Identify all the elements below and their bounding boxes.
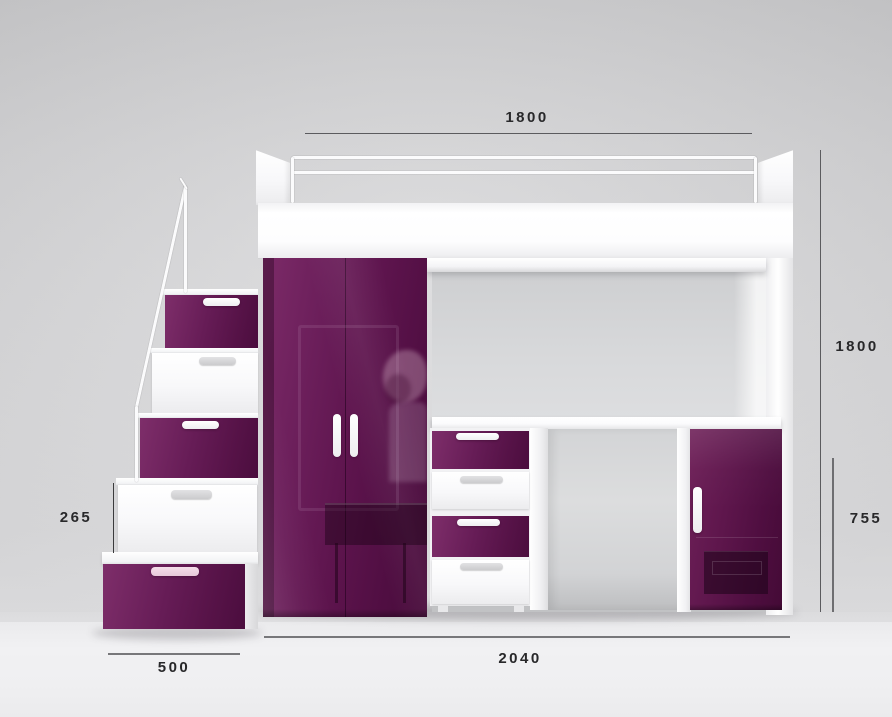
dim-label-desk-clearance: 755	[840, 510, 892, 527]
cabinet-door-handle	[693, 487, 702, 533]
wardrobe-reflection-door-frame	[298, 325, 399, 511]
step-5-top	[102, 552, 258, 564]
step-4-handle	[171, 490, 212, 499]
step-5-handle	[151, 567, 199, 576]
wardrobe-reflection-woman-face	[385, 374, 411, 404]
alcove-right-inner-wall	[734, 262, 766, 420]
furniture-dimension-diagram: 1800 1800 755 265 500 2040	[0, 0, 892, 717]
drawer-unit-side-panel	[530, 428, 548, 610]
dim-line-desk-clearance	[832, 458, 834, 612]
dim-label-steps-depth: 500	[147, 659, 201, 676]
drawer-2-handle	[460, 476, 503, 483]
step-3-handle	[182, 421, 219, 429]
alcove-top-shelf	[427, 258, 766, 272]
wardrobe-reflection-table-leg-right	[403, 543, 406, 603]
handrail-top-post	[184, 186, 187, 293]
wardrobe-reflection-table-top	[325, 503, 427, 545]
dim-line-total-height	[820, 150, 821, 612]
dim-line-step-height	[113, 483, 114, 553]
cabinet-door-reflection-line	[696, 537, 778, 538]
step-2-handle	[199, 357, 236, 365]
bed-fascia-panel	[258, 203, 793, 259]
dim-label-total-height: 1800	[822, 338, 892, 355]
wardrobe-bottom-shade	[263, 609, 427, 617]
drawer-unit-foot-left	[438, 606, 448, 612]
desk-open-space	[548, 429, 677, 610]
drawer-4-handle	[460, 563, 503, 570]
dim-label-bed-width: 1800	[483, 109, 571, 126]
step-1-handle	[203, 298, 240, 306]
bed-guardrail-top-tube	[292, 156, 756, 159]
cabinet-door	[690, 429, 782, 610]
wardrobe-reflection-woman-body	[389, 402, 427, 482]
cabinet-reflection-slot	[712, 561, 762, 575]
dim-label-step-height: 265	[50, 509, 102, 526]
drawer-unit	[430, 428, 550, 614]
dim-label-total-width: 2040	[478, 650, 562, 667]
drawer-3-handle	[457, 519, 500, 526]
drawer-1-handle	[456, 433, 499, 440]
wardrobe-right-door-handle	[350, 414, 358, 457]
cabinet-bottom-shade	[690, 604, 782, 610]
step-5-side-face	[245, 564, 258, 629]
dim-line-bed-width	[305, 133, 752, 134]
dim-line-total-width	[264, 636, 790, 638]
wardrobe	[263, 258, 427, 617]
drawer-unit-foot-right	[514, 606, 524, 612]
bed-guardrail-right-post	[754, 157, 757, 203]
wardrobe-reflection-table-leg-left	[335, 543, 338, 603]
bed-guardrail-bottom-tube	[292, 171, 756, 174]
cabinet-frame	[677, 428, 691, 612]
stairs	[95, 180, 265, 635]
dim-line-steps-depth	[108, 653, 240, 655]
wardrobe-left-door-handle	[333, 414, 341, 457]
handrail-bottom-post	[135, 406, 138, 482]
bed-guardrail-left-post	[291, 157, 294, 203]
